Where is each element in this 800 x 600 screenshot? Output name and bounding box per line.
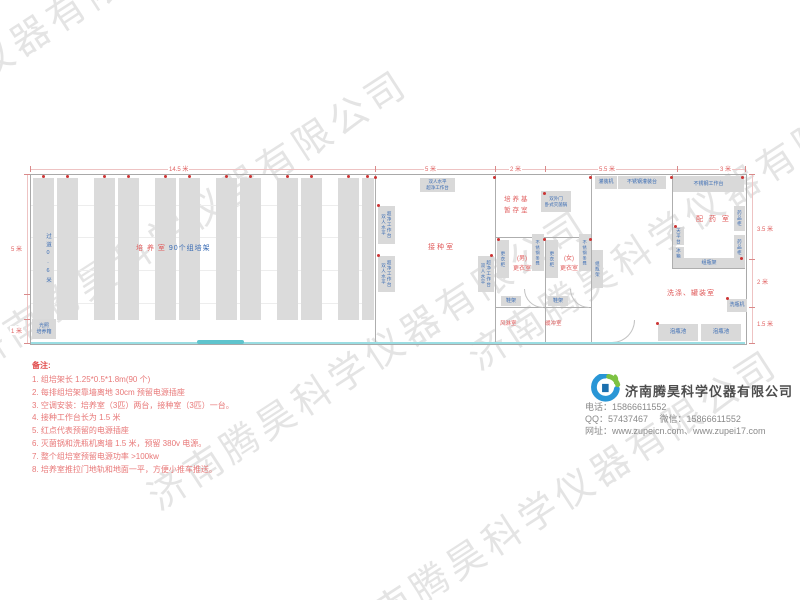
outlet-dot: [490, 254, 493, 257]
room-label-washing: 洗涤、罐装室: [667, 288, 715, 298]
women-room-line: 更衣室: [560, 264, 578, 274]
note-item: 4. 接种工作台长为 1.5 米: [32, 412, 234, 425]
dim-label-left-1: 1 米: [10, 326, 23, 335]
soak-pool-label: 泡瓶池: [670, 329, 687, 336]
note-item: 2. 每排组培架靠墙离地 30cm 预留电源插座: [32, 387, 234, 400]
men-room-line: (男): [513, 254, 531, 264]
outlet-dot: [377, 254, 380, 257]
company-logo-icon: [590, 374, 624, 402]
gridline: [31, 205, 374, 206]
medicine-cabinet-1: 药品柜: [734, 206, 745, 231]
soak-pool-1: 泡瓶池: [658, 324, 698, 341]
outlet-dot: [347, 175, 350, 178]
shoe-rack-men: 鞋架: [501, 296, 521, 306]
wall: [375, 174, 376, 343]
steel-work-table: 不锈钢工作台: [673, 176, 744, 192]
dim-tick: [24, 294, 30, 295]
filling-table-label: 不锈钢灌装台: [627, 179, 657, 185]
dim-tick: [30, 166, 31, 172]
wardrobe-men: 更衣柜: [497, 240, 509, 278]
culture-rack: [277, 178, 298, 320]
dim-tick: [745, 166, 746, 172]
room-label-cultivation: 培 养 室 90个组培架: [136, 243, 211, 253]
dim-tick: [495, 166, 496, 172]
medicine-cabinet-label: 药品柜: [737, 239, 743, 256]
culture-rack: [301, 178, 322, 320]
men-room-line: 更衣室: [513, 264, 531, 274]
medium-storage-line: 暂存室: [504, 205, 530, 216]
outlet-dot: [377, 204, 380, 207]
bottle-washer: 洗瓶机: [727, 299, 747, 312]
steel-bench-label: 不锈钢条凳: [535, 240, 540, 266]
dim-tick: [24, 174, 30, 175]
shoe-rack-women: 鞋架: [548, 296, 568, 306]
dim-tick: [749, 259, 755, 260]
dimension-line-top: [30, 169, 746, 170]
floor-plan-page: 济南腾昊科学仪器有限公司 济南腾昊科学仪器有限公司 济南腾昊科学仪器有限公司 济…: [0, 0, 800, 600]
room-label-medium-storage: 培养基 暂存室: [504, 194, 530, 216]
outlet-dot: [66, 175, 69, 178]
room-label-buffer: 缓冲室: [545, 319, 562, 327]
outlet-dot: [674, 225, 677, 228]
filling-machine: 灌装机: [595, 176, 617, 189]
room-label-inoculation: 接种室: [428, 242, 455, 252]
culture-rack: [362, 178, 374, 320]
outlet-dot: [286, 175, 289, 178]
notes-title: 备注:: [32, 360, 234, 371]
cultivation-red-label: 培 养 室: [136, 245, 166, 252]
sterilizer-label: 卧式灭菌锅: [545, 202, 568, 208]
dim-label-top-4: 3 米: [719, 164, 732, 173]
dim-label-top-1: 5 米: [424, 164, 437, 173]
clean-bench-left-2: 双人水平 超净工作台: [378, 256, 395, 292]
dim-tick: [24, 319, 30, 320]
outlet-dot: [741, 176, 744, 179]
outlet-dot: [249, 175, 252, 178]
wall: [495, 174, 496, 343]
culture-rack: [94, 178, 115, 320]
sliding-door: [197, 340, 244, 344]
culture-rack: [240, 178, 261, 320]
work-table-label: 不锈钢工作台: [693, 181, 723, 187]
note-item: 5. 红点代表预留的电源插座: [32, 425, 234, 438]
outlet-dot: [188, 175, 191, 178]
filling-machine-label: 灌装机: [598, 179, 613, 185]
bottle-rack-horizontal: 组瓶架: [673, 258, 745, 268]
culture-rack: [216, 178, 237, 320]
note-item: 7. 整个组培室预留电源功率 >100kw: [32, 451, 234, 464]
culture-rack: [57, 178, 78, 320]
filling-table: 不锈钢灌装台: [618, 176, 666, 189]
outlet-dot: [670, 176, 673, 179]
note-item: 3. 空调安装：培养室（3匹）两台，接种室（3匹）一台。: [32, 400, 234, 413]
women-room-line: (女): [560, 254, 578, 264]
dim-tick: [749, 343, 755, 344]
medicine-cabinet-label: 药品柜: [737, 210, 743, 227]
medium-storage-line: 培养基: [504, 194, 530, 205]
clean-bench-label: 超净工作台: [426, 185, 449, 191]
room-label-men-changing: (男) 更衣室: [513, 254, 531, 274]
dim-tick: [749, 307, 755, 308]
bottle-rack-label: 组瓶架: [701, 260, 716, 266]
company-name: 济南腾昊科学仪器有限公司: [625, 381, 793, 400]
outlet-dot: [493, 176, 496, 179]
note-item: 1. 组培架长 1.25*0.5*1.8m(90 个): [32, 374, 234, 387]
outlet-dot: [374, 176, 377, 179]
gridline: [31, 237, 374, 238]
dim-tick: [677, 166, 678, 172]
aisle-label: 过道0.6米: [44, 233, 52, 286]
outlet-dot: [225, 175, 228, 178]
glass-wall: [31, 342, 745, 344]
outlet-dot: [310, 175, 313, 178]
outlet-dot: [497, 238, 500, 241]
dim-tick: [545, 166, 546, 172]
balance-table: 天平台: [673, 227, 684, 245]
wall: [495, 307, 592, 308]
room-label-air-shower: 风淋室: [500, 319, 517, 327]
clean-bench-top: 双人水平 超净工作台: [420, 178, 455, 192]
note-item: 6. 灭菌锅和洗瓶机离墙 1.5 米，预留 380v 电源。: [32, 438, 234, 451]
outlet-dot: [127, 175, 130, 178]
dim-label-top-0: 14.5 米: [168, 164, 189, 173]
shoe-rack-label: 鞋架: [553, 298, 563, 304]
outlet-dot: [589, 176, 592, 179]
soak-pool-label: 泡瓶池: [713, 329, 730, 336]
light-incubator-label: 培养箱: [36, 329, 51, 335]
dim-label-top-3: 5.5 米: [598, 164, 616, 173]
watermark-text: 济南腾昊科学仪器有限公司: [325, 333, 788, 600]
room-label-women-changing: (女) 更衣室: [560, 254, 578, 274]
dim-label-right-2: 1.5 米: [756, 319, 774, 328]
bottle-rack-vertical: 组瓶架: [592, 250, 603, 288]
outlet-dot: [726, 297, 729, 300]
gridline: [31, 303, 374, 304]
dim-label-top-2: 2 米: [509, 164, 522, 173]
balance-table-label: 天平台: [676, 228, 682, 245]
outlet-dot: [543, 192, 546, 195]
clean-bench-right: 双人水平 超净工作台: [478, 256, 494, 292]
culture-rack: [338, 178, 359, 320]
wall: [672, 268, 745, 269]
bottle-rack-label: 组瓶架: [595, 261, 601, 278]
dim-label-right-1: 2 米: [756, 277, 769, 286]
gridline: [31, 270, 374, 271]
outlet-dot: [543, 238, 546, 241]
soak-pool-2: 泡瓶池: [701, 324, 741, 341]
outlet-dot: [164, 175, 167, 178]
outlet-dot: [740, 257, 743, 260]
outlet-dot: [589, 238, 592, 241]
wardrobe-women: 更衣柜: [546, 240, 558, 278]
wardrobe-label: 更衣柜: [500, 251, 506, 268]
clean-bench-label: 超净工作台: [486, 260, 492, 288]
outlet-dot: [42, 175, 45, 178]
steel-bench-label: 不锈钢条凳: [582, 240, 587, 266]
clean-bench-left-1: 双人水平 超净工作台: [378, 206, 395, 244]
wardrobe-label: 更衣柜: [549, 251, 555, 268]
clean-bench-label: 超净工作台: [387, 211, 393, 239]
note-item: 8. 培养室推拉门地轨和地面一平，方便小推车推送。: [32, 464, 234, 477]
bottle-washer-label: 洗瓶机: [729, 302, 744, 308]
clean-bench-label: 超净工作台: [387, 260, 393, 288]
dim-tick: [375, 166, 376, 172]
dim-tick: [749, 174, 755, 175]
cultivation-rack-count: 90个组培架: [169, 245, 211, 252]
outlet-dot: [103, 175, 106, 178]
dim-label-left-0: 5 米: [10, 244, 23, 253]
notes-block: 备注: 1. 组培架长 1.25*0.5*1.8m(90 个) 2. 每排组培架…: [32, 360, 234, 476]
medicine-cabinet-2: 药品柜: [734, 235, 745, 260]
company-website: 网址：www.zupeicn.com、www.zupei17.com: [585, 424, 766, 437]
light-incubator: 光照 培养箱: [32, 319, 56, 339]
room-label-dispensing: 配 药 室: [696, 214, 731, 224]
dim-tick: [24, 343, 30, 344]
shoe-rack-label: 鞋架: [506, 298, 516, 304]
outlet-dot: [366, 175, 369, 178]
outlet-dot: [656, 322, 659, 325]
dim-label-right-0: 3.5 米: [756, 224, 774, 233]
